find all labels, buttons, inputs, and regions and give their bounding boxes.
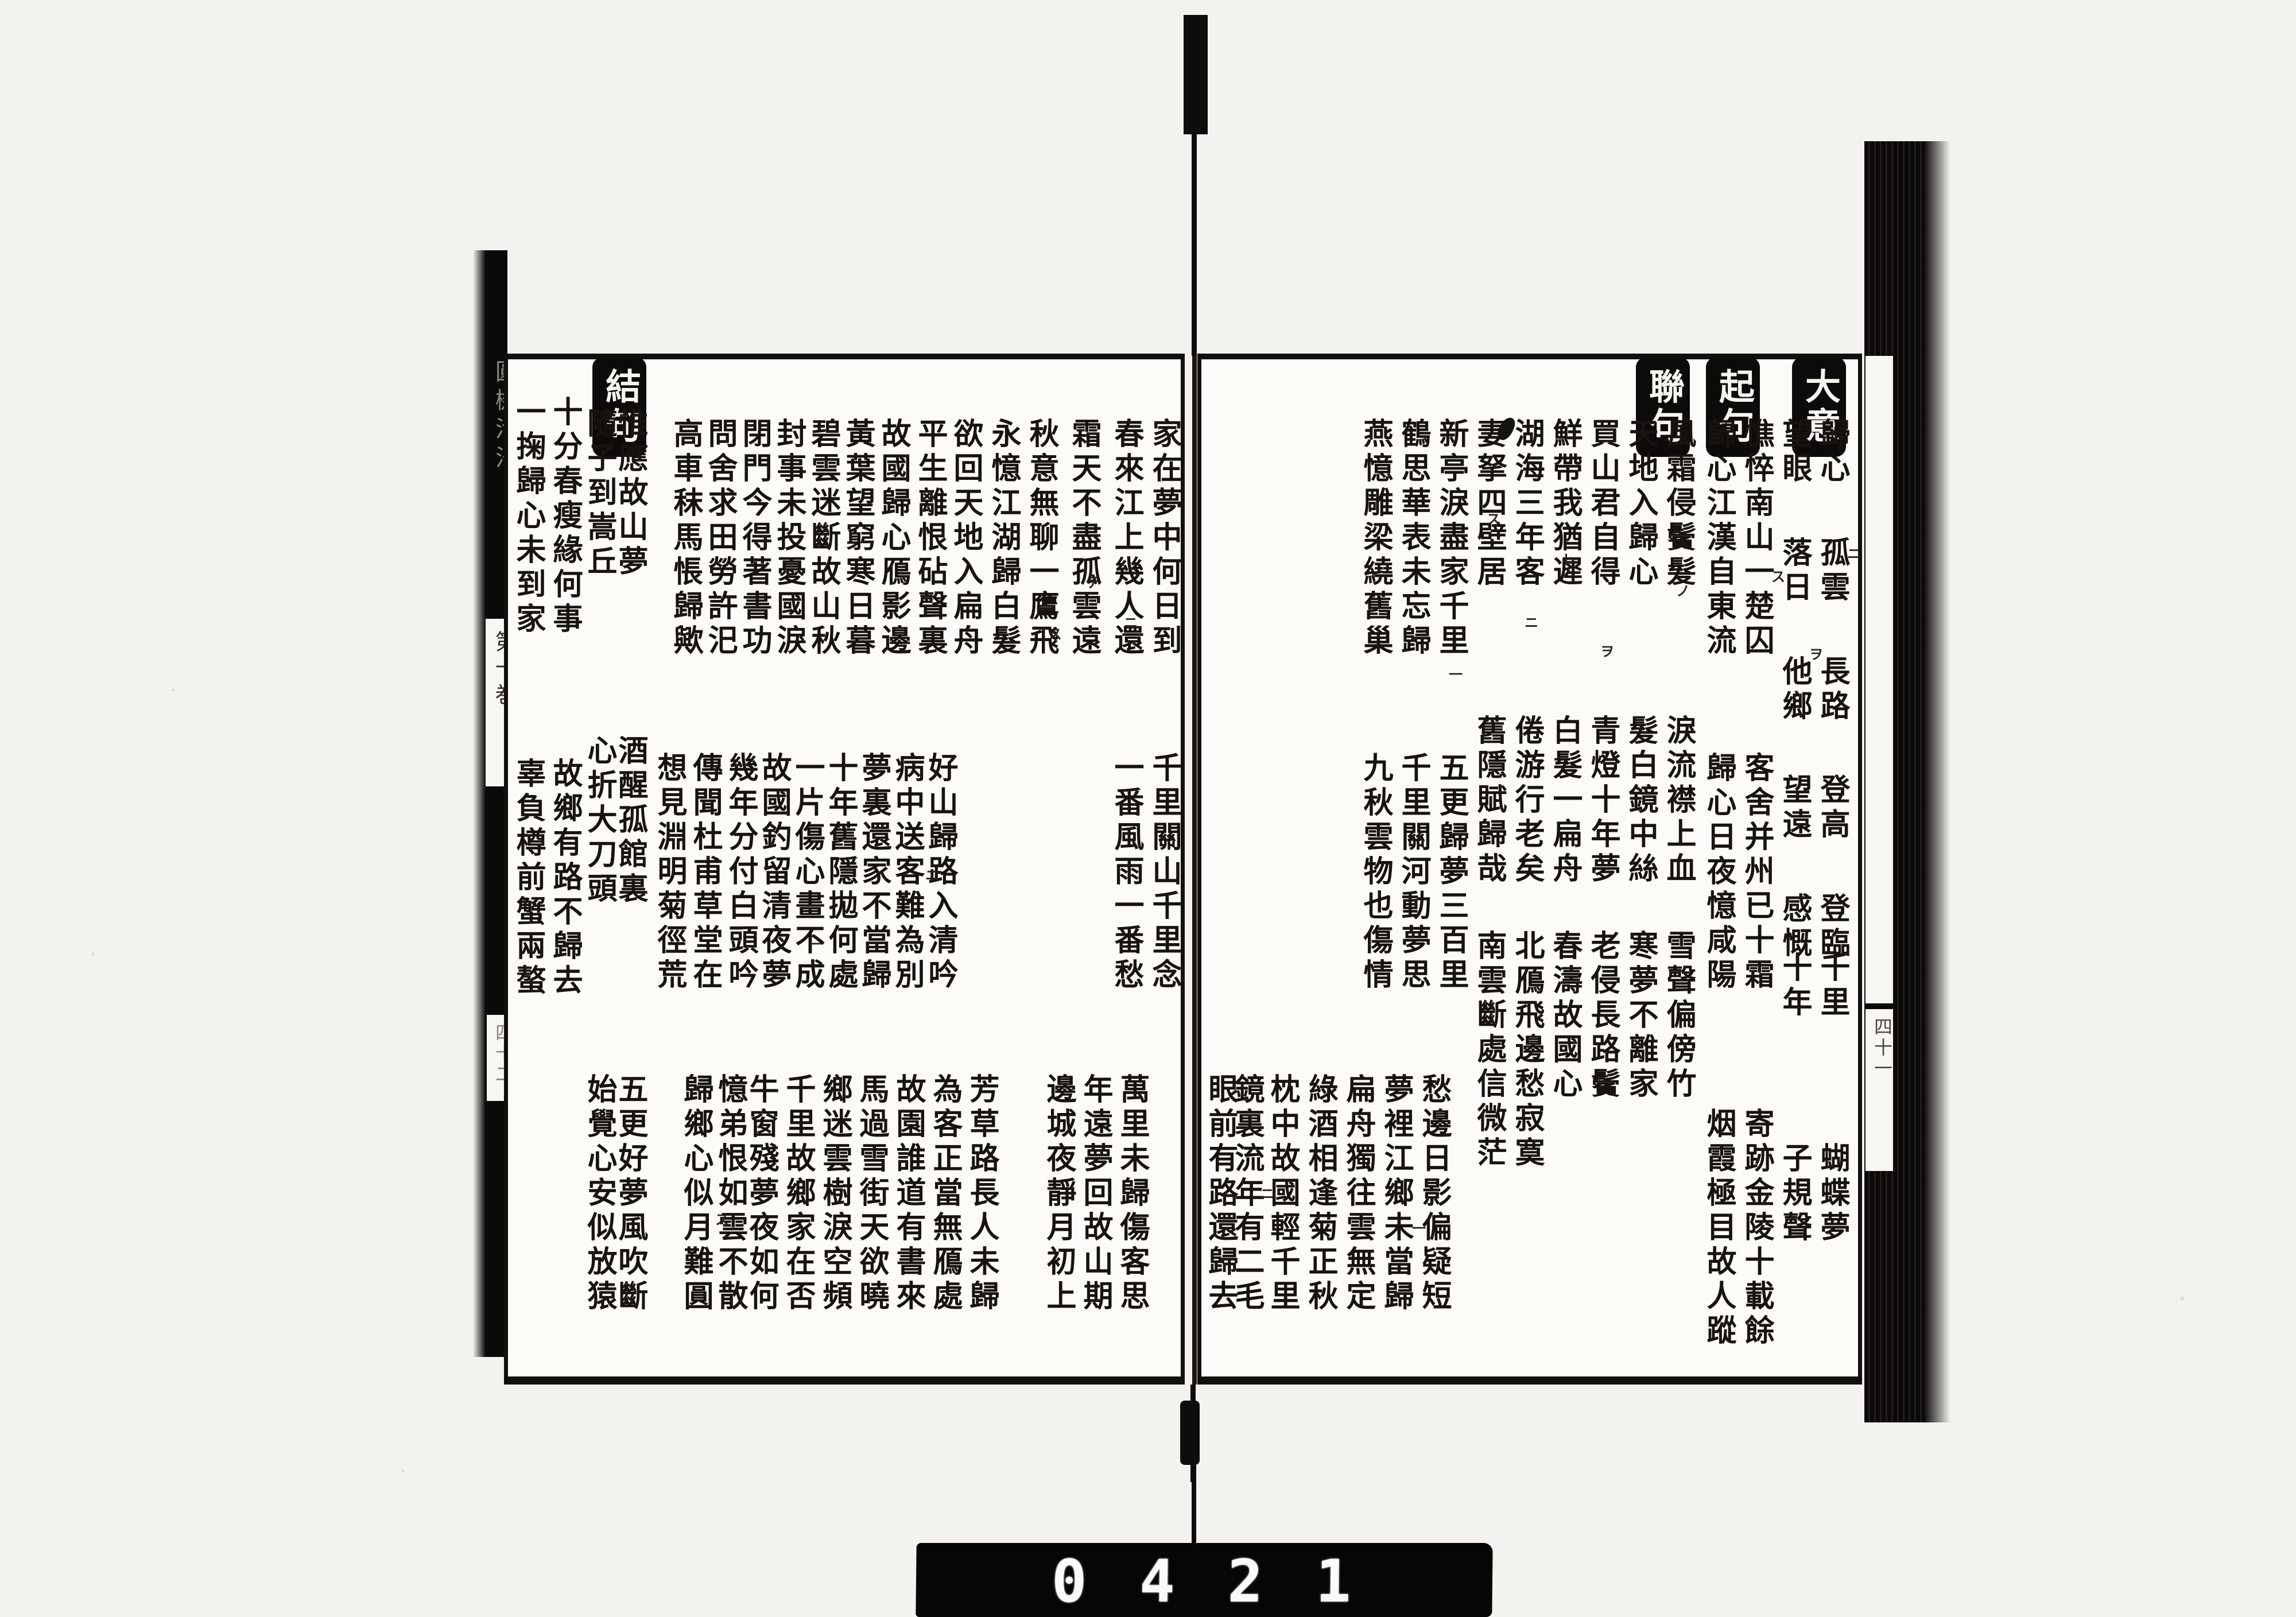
text-column-segment: 千里關河動夢思 bbox=[1395, 752, 1430, 993]
text-column-segment: 烟霞極目故人蹤 bbox=[1700, 1108, 1736, 1349]
kunten-mark: テ bbox=[1086, 571, 1100, 591]
text-column-segment: 憔悴南山一楚囚 bbox=[1738, 418, 1774, 659]
text-column-segment: 寄跡金陵十載餘 bbox=[1738, 1108, 1774, 1349]
right-cover-band-edge bbox=[1924, 141, 1950, 1422]
text-column-segment: 幾年分付白頭吟 bbox=[722, 752, 758, 993]
frame-counter-bar: 0421 bbox=[916, 1543, 1492, 1617]
text-column-segment: 憶弟恨如雲不散 bbox=[712, 1073, 747, 1314]
text-column-segment: 霜天不盡孤雲遠 bbox=[1065, 418, 1101, 659]
text-column-segment: 五更好夢風吹斷 bbox=[612, 1073, 647, 1314]
text-column-segment: 為客正當無鴈處 bbox=[926, 1073, 962, 1314]
text-column-segment: 老侵長路鬢 bbox=[1584, 930, 1620, 1102]
text-column-segment: 九秋雲物也傷情 bbox=[1357, 752, 1393, 993]
text-column-segment: 登高 登臨 bbox=[1814, 774, 1849, 961]
text-column-segment: 一片傷心畫不成 bbox=[789, 752, 824, 993]
text-column-segment: 妻拏四壁居 bbox=[1471, 418, 1506, 590]
kunten-mark: ニ bbox=[1124, 611, 1138, 631]
text-column-segment: 客舍并州已十霜 bbox=[1738, 752, 1774, 993]
text-column-segment: 眼前有路還歸去 bbox=[1202, 1073, 1238, 1314]
text-column-segment: 北鴈飛邊愁寂寞 bbox=[1508, 930, 1544, 1171]
binding-rod-tail bbox=[1192, 1465, 1196, 1545]
text-column-segment: 歸心日夜憶咸陽 bbox=[1700, 752, 1736, 993]
binding-rod-top-handle bbox=[1184, 15, 1208, 134]
kunten-mark: ス bbox=[715, 1208, 729, 1228]
text-column-segment: 千里 bbox=[1814, 952, 1849, 1021]
text-column-segment: 永憶江湖歸白髮 bbox=[985, 418, 1021, 659]
text-column-segment: 扁舟獨往雲無定 bbox=[1340, 1073, 1375, 1314]
text-column-segment: 惟應故山夢 bbox=[612, 408, 647, 580]
text-column-segment: 十分春瘦緣何事 bbox=[546, 396, 582, 637]
text-column-segment: 千里故鄉家在否 bbox=[779, 1073, 815, 1314]
text-column-segment: 故鄉有路不歸去 bbox=[546, 758, 582, 999]
kunten-mark: 一 bbox=[809, 933, 823, 953]
kunten-mark: 一 bbox=[1449, 663, 1463, 683]
text-column-segment: 夢裡江鄉未當歸 bbox=[1378, 1073, 1413, 1314]
right-leaf-number-notch: 四十一 bbox=[1865, 1009, 1893, 1171]
text-column-segment: 新亭淚盡家千里 bbox=[1433, 418, 1468, 659]
text-column-segment: 高車秣馬悵歸歟 bbox=[667, 418, 703, 659]
text-column-segment: 一番風雨一番愁 bbox=[1108, 752, 1143, 993]
right-leaf-number: 四十一 bbox=[1869, 1017, 1895, 1079]
text-column-segment: 十年 bbox=[1776, 952, 1812, 1021]
text-column-segment: 南雲斷處信微茫 bbox=[1471, 930, 1506, 1171]
text-column-segment: 平生離恨砧聲裏 bbox=[912, 418, 947, 659]
text-column-segment: 歸心 孤雲 長路 bbox=[1814, 418, 1849, 724]
text-column-segment: 碧雲迷斷故山秋 bbox=[805, 418, 840, 659]
text-column-segment: 寒夢不離家 bbox=[1622, 930, 1658, 1102]
text-column-segment: 千里關山千里念 bbox=[1146, 752, 1181, 993]
text-column-segment: 隨子到嵩丘 bbox=[581, 408, 616, 580]
text-column-segment: 黃葉望窮寒日暮 bbox=[839, 418, 875, 659]
text-column-segment: 風霜侵鬢髮 bbox=[1660, 418, 1696, 590]
text-column-segment: 夢裏還家不當歸 bbox=[855, 752, 891, 993]
scan-noise bbox=[402, 1469, 404, 1472]
kunten-mark: ニ bbox=[1638, 519, 1652, 540]
frame-counter-value: 0421 bbox=[1051, 1548, 1404, 1616]
text-column-segment: 辜負樽前蟹兩螯 bbox=[510, 758, 545, 999]
text-column-segment: 歸鄉心似月難圓 bbox=[677, 1073, 713, 1314]
text-column-segment: 歸心江漢自東流 bbox=[1700, 418, 1736, 659]
text-column-segment: 白髮一扁舟 bbox=[1546, 715, 1582, 887]
text-column-segment: 望遠 感慨 bbox=[1776, 774, 1812, 961]
right-fore-edge-tick bbox=[1865, 1003, 1893, 1009]
text-column-segment: 一掬歸心未到家 bbox=[510, 396, 545, 637]
text-column-segment: 舊隱賦歸哉 bbox=[1471, 715, 1506, 887]
kunten-mark: ス bbox=[1048, 623, 1062, 643]
kunten-mark: ノ bbox=[1676, 580, 1690, 600]
kunten-mark: ニ bbox=[925, 864, 939, 884]
binding-rod-gutter bbox=[1192, 356, 1197, 1385]
text-column-segment: 想見淵明菊徑荒 bbox=[651, 752, 687, 993]
text-column-segment: 故園誰道有書來 bbox=[890, 1073, 925, 1314]
text-column-segment: 馬過雪街天欲曉 bbox=[853, 1073, 889, 1314]
text-column-segment: 故國釣留清夜夢 bbox=[755, 752, 791, 993]
kunten-mark: ニ bbox=[1525, 611, 1538, 631]
text-column-segment: 閉門今得著書功 bbox=[736, 418, 771, 659]
text-column-segment: 故國歸心鴈影邊 bbox=[875, 418, 910, 659]
text-column-segment: 邊城夜靜月初上 bbox=[1040, 1073, 1076, 1314]
text-column-segment: 傳聞杜甫草堂在 bbox=[687, 752, 722, 993]
text-column-segment: 十年舊隱拋何處 bbox=[822, 752, 858, 993]
text-column-segment: 綠酒相逢菊正秋 bbox=[1302, 1073, 1337, 1314]
text-column-segment: 鶴思華表未忘歸 bbox=[1395, 418, 1430, 659]
text-column-segment: 雪聲偏傍竹 bbox=[1660, 930, 1696, 1102]
text-column-segment: 封事未投憂國淚 bbox=[770, 418, 806, 659]
text-column-segment: 買山君自得 bbox=[1584, 418, 1620, 590]
text-column-segment: 青燈十年夢 bbox=[1584, 715, 1620, 887]
kunten-mark: 一 bbox=[1412, 1217, 1426, 1237]
text-column-segment: 家在夢中何日到 bbox=[1146, 418, 1181, 659]
text-column-segment: 問舍求田勞許汜 bbox=[701, 418, 737, 659]
text-column-segment: 子規聲 bbox=[1776, 1142, 1812, 1246]
text-column-segment: 天地入歸心 bbox=[1622, 418, 1658, 590]
binding-rod-upper bbox=[1192, 134, 1197, 356]
binding-rod-lower-blob bbox=[1180, 1401, 1200, 1465]
kunten-mark: ヲ bbox=[1809, 643, 1823, 663]
text-column-segment: 病中送客難為別 bbox=[889, 752, 924, 993]
text-column-segment: 牛窗殘夢夜如何 bbox=[743, 1073, 778, 1314]
text-column-segment: 鄉迷雲樹淚空頻 bbox=[816, 1073, 852, 1314]
text-column-segment: 愁邊日影偏疑短 bbox=[1415, 1073, 1451, 1314]
text-column-segment: 燕憶雕梁繞舊巢 bbox=[1357, 418, 1393, 659]
kunten-mark: ヲ bbox=[1600, 640, 1614, 660]
kunten-mark: ス bbox=[1487, 508, 1500, 528]
kunten-mark: レ bbox=[1562, 548, 1576, 568]
text-column-segment: 心折大刀頭 bbox=[581, 735, 616, 907]
text-column-segment: 欲回天地入扁舟 bbox=[947, 418, 983, 659]
text-column-segment: 酒醒孤館裏 bbox=[612, 735, 647, 907]
text-column-segment: 始覺心安似放猿 bbox=[581, 1073, 616, 1314]
text-column-segment: 髮白鏡中絲 bbox=[1622, 715, 1658, 887]
microfilm-scan-frame: 圓機活法 第十巻 四十二 四十一 0421 大意起句聯句歸心 孤雲 長路登高 登… bbox=[0, 0, 2296, 1617]
text-column-segment: 年遠夢回故山期 bbox=[1077, 1073, 1112, 1314]
text-column-segment: 春濤故國心 bbox=[1546, 930, 1582, 1102]
text-column-segment: 蝴蝶夢 bbox=[1814, 1142, 1849, 1246]
text-column-segment: 萬里未歸傷客思 bbox=[1114, 1073, 1149, 1314]
text-column-segment: 倦游行老矣 bbox=[1508, 715, 1544, 887]
kunten-mark: ニ bbox=[1261, 1182, 1274, 1203]
text-column-segment: 湖海三年客 bbox=[1508, 418, 1544, 590]
kunten-mark: ニ bbox=[1847, 542, 1861, 563]
text-column-segment: 淚流襟上血 bbox=[1660, 715, 1696, 887]
text-column-segment: 五更歸夢三百里 bbox=[1433, 752, 1468, 993]
kunten-mark: ス bbox=[1771, 565, 1785, 585]
text-column-segment: 芳草路長人未歸 bbox=[963, 1073, 999, 1314]
left-cover-band-edge bbox=[473, 250, 486, 1357]
